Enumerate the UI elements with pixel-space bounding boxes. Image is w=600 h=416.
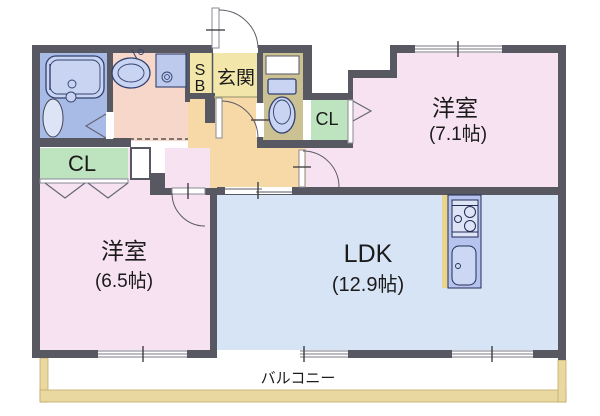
wall xyxy=(303,45,312,100)
wall-step xyxy=(390,45,397,78)
balcony-edge-bottom xyxy=(40,390,566,402)
balcony-edge-right xyxy=(558,360,566,402)
wall xyxy=(165,188,172,195)
wall xyxy=(533,350,566,358)
wall xyxy=(205,93,215,123)
shoebox-label-s: S xyxy=(195,62,206,79)
toilet-bowl xyxy=(269,97,295,133)
kitchen-counter-edge xyxy=(442,195,448,288)
wall xyxy=(210,188,217,358)
wall-step xyxy=(348,70,397,78)
wall xyxy=(187,350,217,358)
wall xyxy=(150,173,165,195)
shoebox-label-b: B xyxy=(195,78,206,95)
pipe-space-box xyxy=(131,148,150,179)
ldk-name-label: LDK xyxy=(344,240,393,268)
room-ldk xyxy=(217,195,558,350)
closet-left-label: CL xyxy=(68,151,96,176)
floor-plan: 洋室 (7.1帖) 洋室 (6.5帖) LDK (12.9帖) 玄関 S B C… xyxy=(0,0,600,416)
wall xyxy=(40,350,98,358)
toilet-tank xyxy=(268,79,296,94)
toilet-window xyxy=(266,56,299,74)
floor-plan-canvas: 洋室 (7.1帖) 洋室 (6.5帖) LDK (12.9帖) 玄関 S B C… xyxy=(0,0,600,416)
western2-size-label: (6.5帖) xyxy=(95,270,153,292)
western1-door-leaf xyxy=(299,150,305,187)
balcony-label: バルコニー xyxy=(261,370,336,387)
ldk-size-label: (12.9帖) xyxy=(332,273,404,296)
toilet-icon xyxy=(268,79,296,133)
wall xyxy=(348,350,452,358)
bathtub-overflow xyxy=(66,92,76,102)
western2-name-label: 洋室 xyxy=(101,238,147,264)
entrance-doorway xyxy=(213,45,258,53)
toilet-door-leaf xyxy=(216,98,222,138)
western1-size-label: (7.1帖) xyxy=(429,123,487,145)
wall-gap xyxy=(150,148,165,173)
kitchen-sink-icon xyxy=(452,246,476,285)
entrance-door-leaf xyxy=(212,8,219,48)
closet-right-label: CL xyxy=(315,109,338,129)
wall xyxy=(306,93,353,100)
closet-left-door xyxy=(40,179,128,183)
bathroom-door-leaf xyxy=(43,99,63,137)
washing-machine-icon xyxy=(156,54,186,87)
stove-icon xyxy=(452,200,478,237)
entrance-label: 玄関 xyxy=(217,67,255,89)
wall-outer-right xyxy=(558,45,566,360)
closet-right-door xyxy=(348,100,353,143)
kitchen-counter xyxy=(442,195,481,288)
wall-outer-left xyxy=(32,45,40,358)
bathtub-icon xyxy=(46,56,104,102)
wall xyxy=(257,140,353,148)
wall xyxy=(32,45,213,53)
western1-name-label: 洋室 xyxy=(432,95,478,121)
hallway-vertical xyxy=(188,97,258,148)
washing-machine-pan xyxy=(156,54,186,87)
bathtub-outline xyxy=(46,56,104,98)
bathroom-doorway xyxy=(106,112,114,139)
